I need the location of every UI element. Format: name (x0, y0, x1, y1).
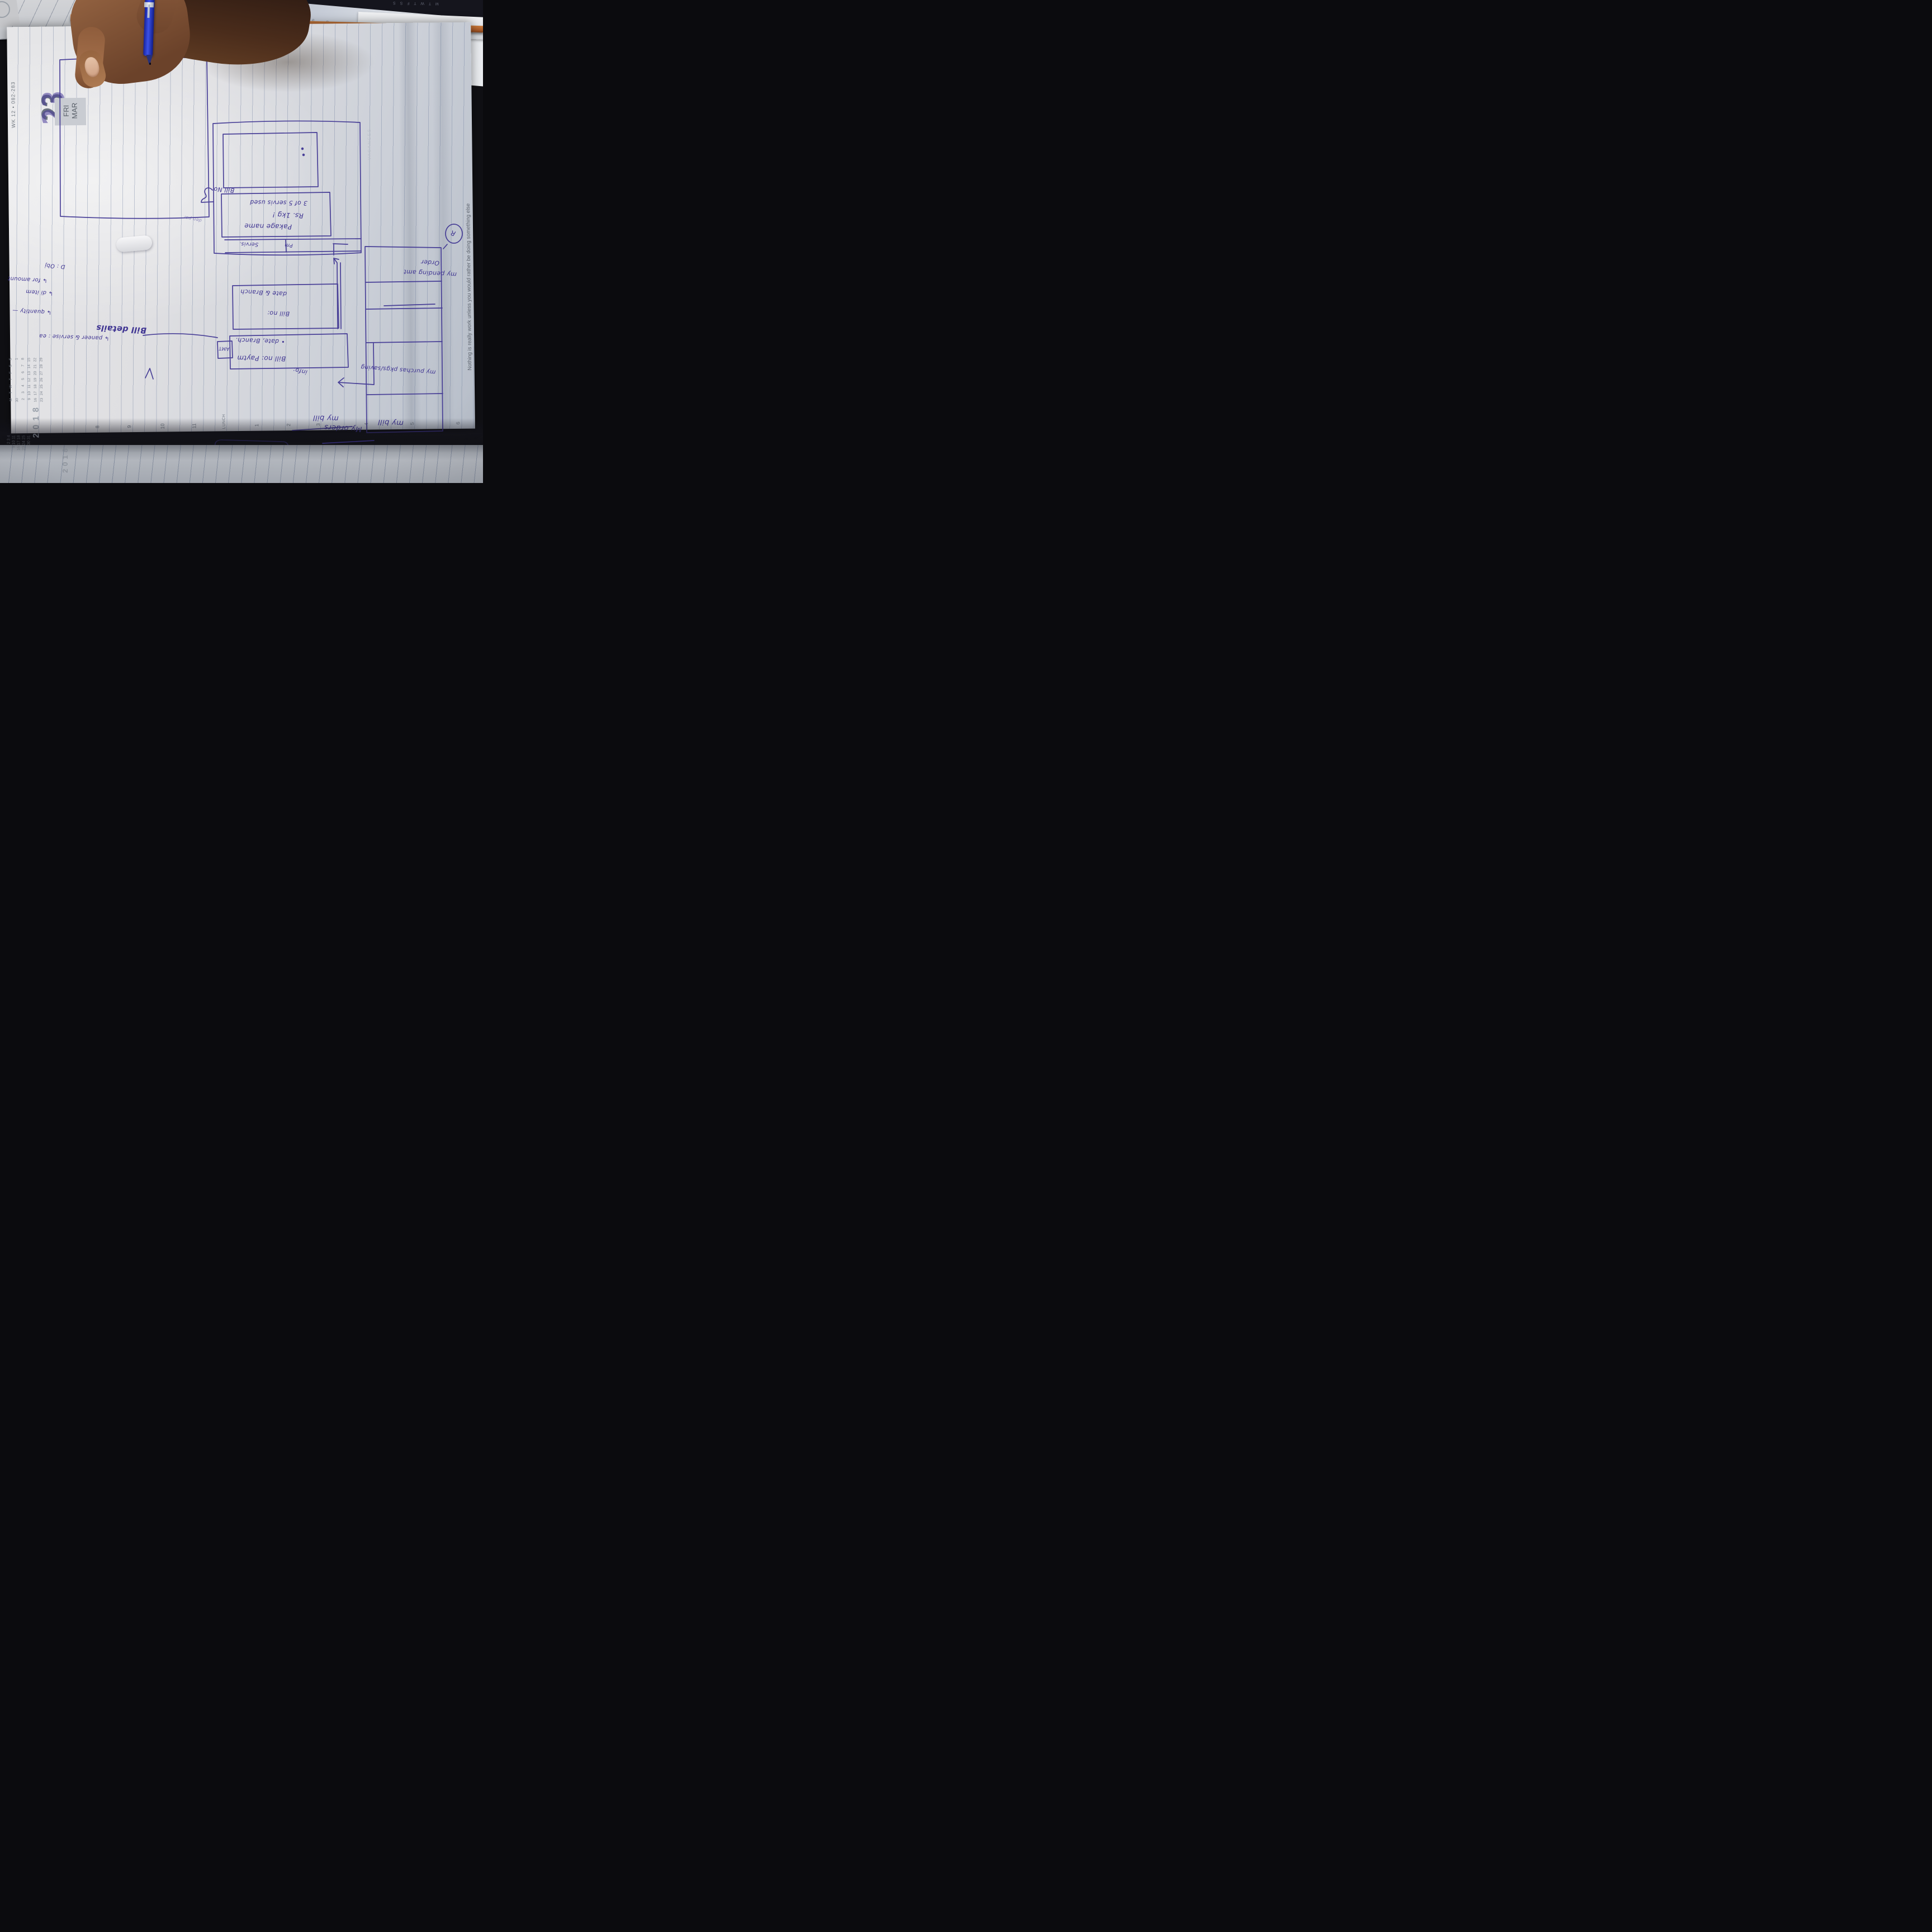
spine-shadow (0, 418, 483, 453)
image-dot (302, 148, 304, 150)
menu-row-divider (367, 394, 443, 395)
amt-label: AMT (219, 345, 230, 352)
package-bill-no-label: Bill No (214, 186, 235, 195)
package-image-box (223, 132, 318, 188)
menu-row-divider (366, 281, 442, 282)
bill-row1-line1: Bill no: Paytm (237, 354, 286, 363)
menu-row-divider (366, 308, 442, 309)
check-mark (145, 368, 153, 379)
image-dot (303, 154, 305, 156)
corner-mark-arrow (443, 244, 447, 249)
arrow-to-package (334, 258, 341, 329)
connector-hook-squiggle (201, 188, 213, 202)
photo-of-planner-sketch: M T W T F S M T W T F S S 1 2 3 4 5 6 7 … (0, 0, 483, 483)
pen-tip-point (149, 63, 151, 65)
package-name-line: Pakage name (244, 222, 292, 230)
package-qty-line: Rs. 1kg ! (272, 211, 304, 220)
bill-details-connector (143, 334, 217, 338)
pending-amount-dash (384, 304, 435, 306)
bill-row2-line1: Bill no: (267, 309, 290, 317)
menu-row-divider (366, 342, 442, 343)
package-footer-cell-pm: Pm (285, 242, 293, 248)
menu-row-order: Order (421, 258, 440, 267)
package-footer-cell-servis: Servis. (239, 240, 258, 247)
pen-clip (148, 4, 150, 18)
package-usage-line: 3 of 5 servis used (250, 198, 307, 207)
